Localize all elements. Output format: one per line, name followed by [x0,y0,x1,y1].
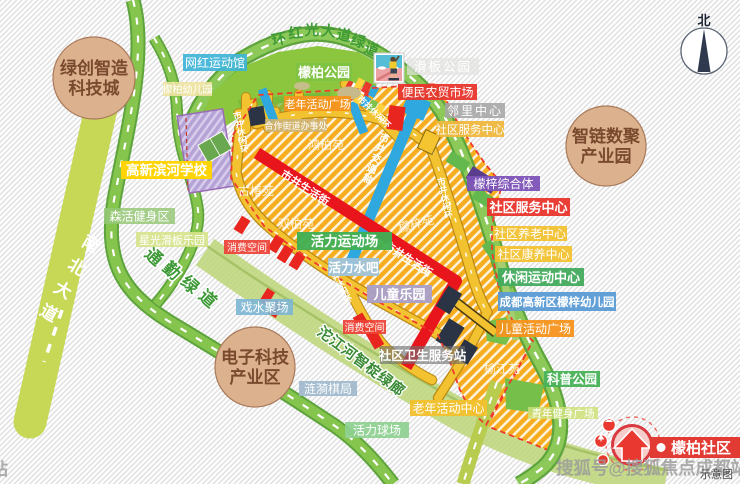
svg-text:智链数聚: 智链数聚 [572,126,641,146]
svg-text:电子科技: 电子科技 [221,347,290,367]
svg-text:高新滨河学校: 高新滨河学校 [126,162,207,178]
svg-text:光: 光 [304,21,320,39]
svg-text:合作街道办事处: 合作街道办事处 [264,120,327,131]
svg-text:产业区: 产业区 [230,367,281,387]
svg-text:老年活动广场: 老年活动广场 [285,97,351,111]
svg-text:科普公园: 科普公园 [547,372,597,387]
svg-text:涟漪棋局: 涟漪棋局 [304,381,352,396]
svg-text:北: 北 [697,13,710,28]
svg-text:邻里中心: 邻里中心 [447,103,503,118]
svg-text:社区养老中心: 社区养老中心 [494,226,566,241]
svg-text:老年活动中心: 老年活动中心 [412,401,484,416]
svg-text:滑板公园: 滑板公园 [414,60,472,74]
svg-text:大: 大 [320,21,337,40]
svg-text:星光滑板乐园: 星光滑板乐园 [139,233,205,247]
svg-text:活力运动场: 活力运动场 [311,233,379,249]
svg-text:产业园: 产业园 [581,146,632,166]
svg-text:森活健身区: 森活健身区 [109,209,169,224]
svg-text:榆江苑: 榆江苑 [484,361,520,376]
svg-text:鸿柏苑: 鸿柏苑 [308,137,344,152]
svg-text:社区康养中心: 社区康养中心 [497,247,569,262]
svg-text:休闲运动中心: 休闲运动中心 [501,270,580,285]
svg-text:活力水吧: 活力水吧 [328,260,379,275]
svg-text:檬梓综合体: 檬梓综合体 [473,176,533,191]
svg-text:青年健身广场: 青年健身广场 [532,407,595,420]
svg-text:古椿苑: 古椿苑 [238,183,274,198]
svg-text:便民农贸市场: 便民农贸市场 [401,85,473,100]
svg-text:消费空间: 消费空间 [227,241,267,254]
svg-text:网红运动馆: 网红运动馆 [185,55,245,70]
svg-text:社区卫生服务站: 社区卫生服务站 [378,348,467,363]
svg-text:双柏苑: 双柏苑 [278,216,314,231]
svg-text:成都高新区檬梓幼儿园: 成都高新区檬梓幼儿园 [500,295,615,309]
svg-text:儿童乐园: 儿童乐园 [372,287,425,302]
svg-text:金苹果领办: 金苹果领办 [549,310,584,319]
svg-text:儿童活动广场: 儿童活动广场 [499,321,571,336]
svg-text:檬柏幼儿园: 檬柏幼儿园 [163,83,213,96]
svg-text:红: 红 [287,23,304,42]
svg-text:檬柏社区: 檬柏社区 [671,439,731,457]
svg-text:绿创智造: 绿创智造 [60,58,129,78]
svg-text:科技城: 科技城 [69,78,120,98]
svg-text:社区服务中心: 社区服务中心 [488,200,567,215]
svg-text:社区服务中心: 社区服务中心 [436,123,505,137]
svg-text:站: 站 [0,459,8,479]
svg-text:消费空间: 消费空间 [345,321,385,334]
svg-text:檬柏公园: 檬柏公园 [298,65,350,80]
svg-text:戏水聚场: 戏水聚场 [240,301,288,315]
svg-text:示意图: 示意图 [700,467,733,481]
svg-text:活力球场: 活力球场 [353,424,401,438]
